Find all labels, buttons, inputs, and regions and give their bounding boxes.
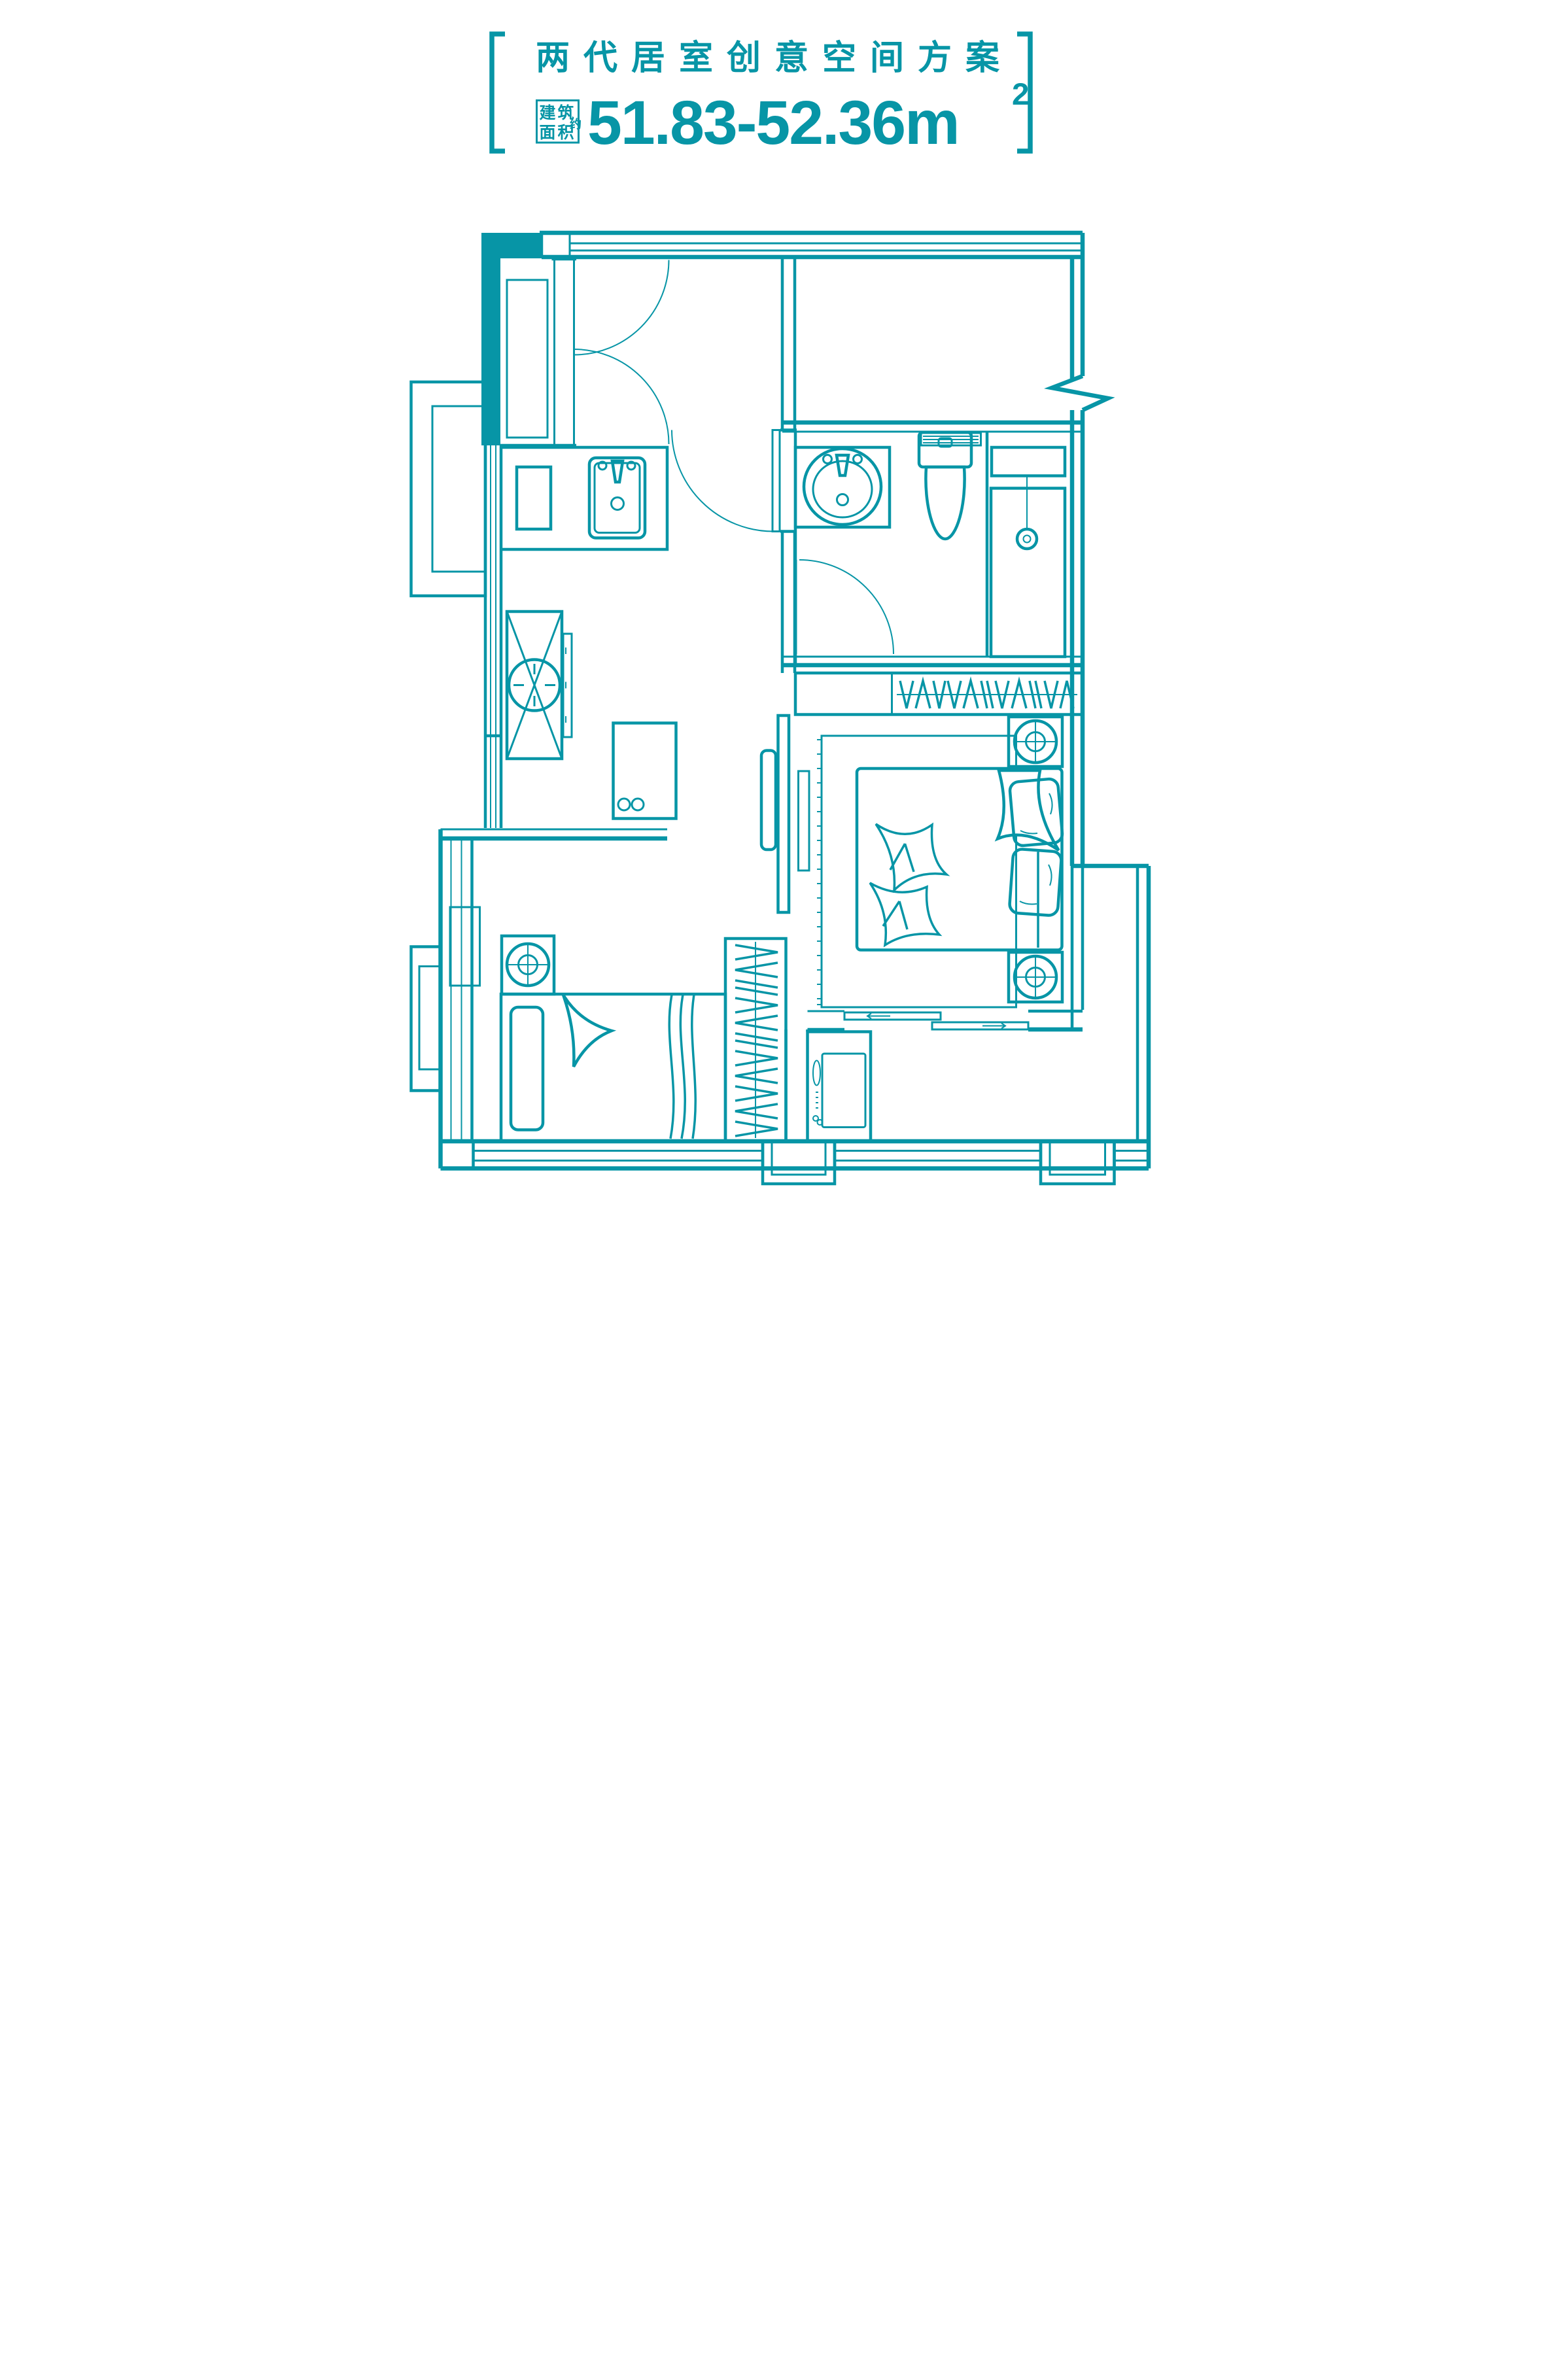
bathroom <box>782 423 1083 665</box>
accent-wall <box>481 233 542 445</box>
shelf <box>798 771 809 871</box>
sliding-door-icon <box>844 1012 1028 1029</box>
washing-machine-icon <box>807 1032 871 1142</box>
rug-icon <box>817 736 1016 1007</box>
toilet-icon <box>919 432 971 539</box>
balcony <box>786 1029 871 1141</box>
floor-plan <box>411 233 1149 1184</box>
shower-head-icon <box>1017 529 1037 549</box>
entry-cabinet <box>507 280 547 438</box>
kitchen-sink-icon <box>589 458 645 538</box>
second-bedroom <box>440 829 725 1169</box>
master-bedroom <box>761 716 1063 1007</box>
quilt-icon <box>870 824 946 945</box>
ac-platform-icon <box>411 382 485 596</box>
title-block: 两代居室创意空间方案 建筑 面积 约 51.83-52.36m 2 <box>492 34 1030 158</box>
bottom-railing <box>440 1141 1149 1184</box>
shower <box>991 447 1065 657</box>
entry-double-door-icon <box>574 260 668 355</box>
railing-icon <box>473 1141 1149 1169</box>
door-leaf <box>772 430 780 532</box>
kitchen <box>501 447 667 759</box>
area-badge: 建筑 面积 约 <box>536 101 582 143</box>
top-window-wall <box>540 233 1083 257</box>
entry <box>500 257 669 447</box>
wardrobe-hangers-icon <box>735 945 778 1136</box>
balcony-pier-icon <box>1041 1141 1115 1184</box>
left-window-wall <box>411 382 501 1091</box>
nightstand-lamp <box>502 936 554 994</box>
window-panel <box>450 907 480 986</box>
balcony-sliding-door <box>807 1011 1083 1029</box>
floorplan-page: 两代居室创意空间方案 建筑 面积 约 51.83-52.36m 2 <box>387 0 1159 1190</box>
bathroom-basin-icon <box>795 447 890 527</box>
balcony-pier-icon <box>763 1141 835 1184</box>
double-bed-icon <box>857 768 1063 950</box>
master-wardrobe <box>795 673 1083 715</box>
pillow-icon <box>511 1007 543 1130</box>
drainboard <box>517 467 551 529</box>
left-bracket-icon <box>492 34 505 151</box>
area-value: 51.83-52.36m <box>587 88 959 158</box>
area-superscript: 2 <box>1012 77 1029 112</box>
floor-plan-canvas: 两代居室创意空间方案 建筑 面积 约 51.83-52.36m 2 <box>387 0 1159 1190</box>
kitchen-counter <box>501 447 667 549</box>
page-title: 两代居室创意空间方案 <box>535 39 1013 77</box>
quilt-icon <box>669 995 695 1139</box>
quilt-fold <box>563 995 612 1067</box>
interior-door-icon <box>672 430 774 532</box>
tv-wall <box>761 716 809 912</box>
entry-double-door-icon <box>574 349 668 444</box>
bathroom-door-icon <box>799 560 894 654</box>
area-approx: 约 <box>570 117 582 131</box>
single-bed-icon <box>501 994 725 1141</box>
wall-break-icon <box>1052 376 1108 410</box>
stove-burner-icon <box>507 612 572 759</box>
tv-icon <box>761 751 776 850</box>
hall-wardrobe <box>725 939 786 1141</box>
dining-table-icon <box>613 723 676 819</box>
quilt-fold <box>998 770 1059 850</box>
living-door-wall <box>672 257 797 673</box>
